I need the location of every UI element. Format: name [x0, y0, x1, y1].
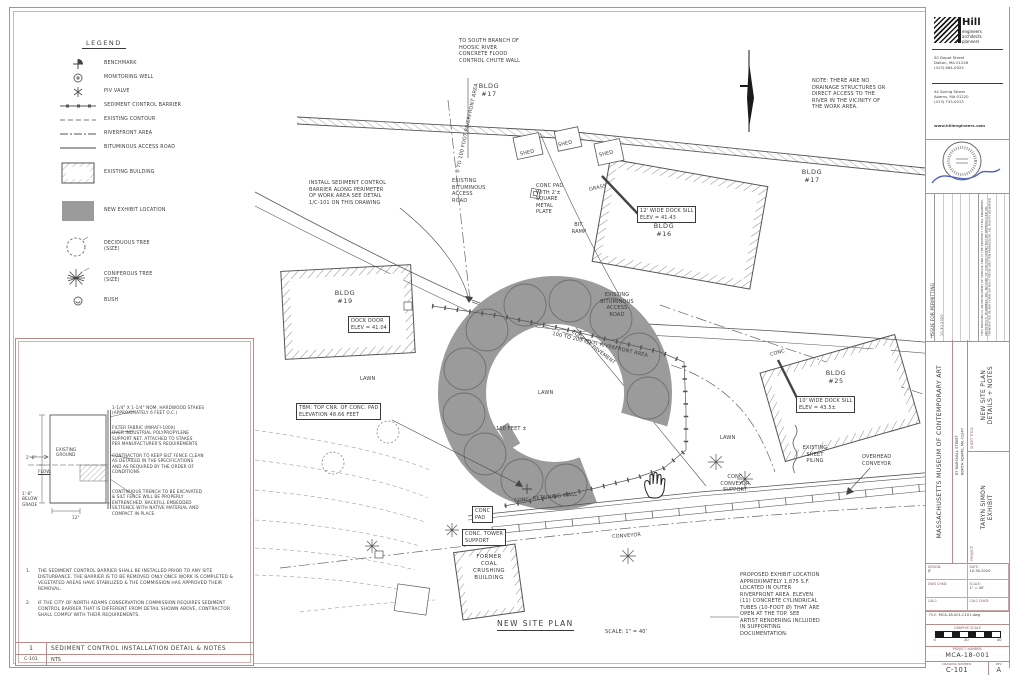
label-lawn-3: LAWN: [720, 435, 735, 442]
revision-description: ISSUE FOR PERMITTING: [930, 200, 935, 336]
benchmark-icon: [52, 58, 104, 70]
firm-address-2: 44 Spring Street Adams, MA 01220 (413) 7…: [934, 89, 969, 104]
detail-callout-trench: CONTINUOUS TRENCH TO BE EXCAVATED & SILT…: [112, 489, 244, 516]
label-bit-road-a: EXISTING BITUMINOUS ACCESS ROAD: [452, 178, 485, 204]
client-address: 87 MARSHALL STREET NORTH ADAMS, MA 01247: [955, 428, 966, 475]
deciduous-tree-icon: [52, 234, 104, 260]
legend-label: BENCHMARK: [104, 61, 137, 67]
legend-label: PIV VALVE: [104, 89, 130, 95]
label-dock-sill-25: 10' WIDE DOCK SILL ELEV = 43.5±: [796, 396, 855, 413]
legend-label: RIVERFRONT AREA: [104, 131, 152, 137]
label-conc-pad-plate: CONC PAD WITH 2'± SQUARE METAL PLATE: [536, 183, 563, 216]
firm-website: www.hillengineers.com: [934, 123, 985, 128]
firm-tagline: engineers architects planners: [962, 29, 982, 45]
field-value: 1" = 40': [970, 586, 985, 590]
existing-contour-icon: [52, 114, 104, 126]
label-bit-ramp: BIT. RAMP: [572, 222, 587, 235]
field-calc: CALC:: [926, 598, 968, 611]
dim-below-grade: 1'-6" BELOW GRADE: [22, 491, 38, 507]
deciduous-trees: [322, 421, 399, 474]
riverfront-area-icon: [52, 128, 104, 140]
existing-contours: [255, 430, 435, 612]
label-conc-conveyor-support: CONC CONVEYOR SUPPORT: [720, 474, 749, 494]
detail-callout-contractor: CONTRACTOR TO KEEP SILT FENCE CLEAN AS D…: [112, 453, 244, 475]
copyright-fine-print: THIS DRAWING IS AN INSTRUMENT OF SERVICE…: [981, 196, 1007, 336]
field-date: DATE:10-30-2020: [968, 563, 1010, 580]
label-lawn-2: LAWN: [538, 390, 553, 397]
label-dock-sill-16: 12' WIDE DOCK SILL ELEV = 41.43: [637, 206, 696, 223]
project-title: TARYN SIMON EXHIBIT: [980, 485, 994, 529]
existing-building-icon: [52, 160, 104, 186]
project-client-block: MASSACHUSETTS MUSEUM OF CONTEMPORARY ART…: [926, 340, 1009, 564]
dim-existing-ground: EXISTING GROUND: [56, 447, 76, 458]
legend-label: MONITORING WELL: [104, 75, 153, 81]
legend-label: DECIDUOUS TREE (SIZE): [104, 241, 150, 253]
divider: [932, 83, 1003, 84]
firm-name: Hill: [962, 17, 981, 28]
firm-logo-icon: [934, 17, 961, 43]
legend-label: EXISTING CONTOUR: [104, 117, 155, 123]
drawing-sheet: TO SOUTH BRANCH OF HOOSIC RIVER CONCRETE…: [0, 0, 1016, 675]
label-lawn-1: LAWN: [360, 376, 375, 383]
label-bit-road-b: EXISTING BITUMINOUS ACCESS ROAD: [600, 292, 633, 318]
sediment-barrier-icon: [52, 100, 104, 112]
label-conc-pad-small: CONC PAD: [472, 506, 493, 523]
detail-scale: NTS: [47, 655, 253, 665]
revision-block: ISSUE FOR PERMITTING 10-30-2020 1 THIS D…: [926, 193, 1009, 342]
building-19: [281, 265, 415, 360]
hand-cursor: [645, 473, 665, 499]
scale-tick: 20: [964, 638, 969, 642]
project-number: MCA-18-001: [926, 651, 1009, 659]
client-name-cell: MASSACHUSETTS MUSEUM OF CONTEMPORARY ART: [926, 340, 953, 563]
field-label: CALC CHKD:: [970, 599, 1007, 603]
label-bldg-19: BLDG #19: [335, 289, 356, 306]
legend-label: EXISTING BUILDING: [104, 170, 155, 176]
sheet-title: NEW SITE PLAN DETAILS + NOTES: [980, 366, 994, 424]
revision-date: 10-30-2020: [940, 200, 944, 336]
detail-callout-stakes: 1-1/4" X 1-1/4" NOM. HARDWOOD STAKES (AP…: [112, 405, 244, 416]
label-install-barrier-note: INSTALL SEDIMENT CONTROL BARRIER ALONG P…: [309, 180, 386, 206]
title-block: Hill engineers architects planners 50 De…: [925, 7, 1010, 668]
field-label: DWG CHKD:: [928, 582, 965, 586]
legend: LEGEND BENCHMARK MONITORING WELL PIV VAL…: [52, 30, 248, 309]
file-value: MCA-18-001-C101.dwg: [939, 613, 980, 617]
drawing-info-fields: DESIGN:JF DATE:10-30-2020 DWG CHKD: SCAL…: [926, 563, 1009, 612]
label-bldg-17-b: BLDG #17: [802, 168, 823, 185]
piv-valve-icon: [52, 86, 104, 98]
file-row: FILE: MCA-18-001-C101.dwg: [926, 611, 1009, 625]
label-overhead-conveyor: OVERHEAD CONVEYOR: [862, 454, 891, 467]
label-110-feet: 110 FEET ±: [496, 426, 527, 433]
detail-note-1: THE SEDIMENT CONTROL BARRIER SHALL BE IN…: [38, 569, 245, 593]
legend-label: BITUMINOUS ACCESS ROAD: [104, 145, 175, 151]
detail-note-2-number: 2.: [26, 601, 30, 606]
bituminous-road-icon: [52, 142, 104, 154]
detail-title: SEDIMENT CONTROL INSTALLATION DETAIL & N…: [47, 643, 253, 654]
building-16: [592, 159, 768, 289]
graphic-scale-bar: [935, 631, 1001, 638]
label-bldg-17-a: BLDG #17: [479, 82, 500, 99]
dim-flow: FLOW: [38, 469, 50, 474]
detail-callout-fabric: FILTER FABRIC (MIRAFI-100X) OVER INDUSTR…: [112, 425, 244, 447]
dim-width: 12": [72, 515, 80, 520]
revision-number: 1: [930, 334, 933, 339]
label-bldg-16: BLDG #16: [654, 222, 675, 239]
label-former-coal-building: FORMER COAL CRUSHING BUILDING: [473, 554, 505, 582]
pe-seal: [926, 139, 1007, 191]
graphic-scale-block: GRAPHIC SCALE 0 20 40: [926, 625, 1009, 647]
pe-seal-block: [926, 139, 1009, 193]
firm-logo-block: Hill engineers architects planners 50 De…: [926, 7, 1009, 140]
bush-icon: [52, 294, 104, 308]
legend-title: LEGEND: [82, 39, 126, 49]
detail-note-2: IF THE CITY OF NORTH ADAMS CONSERVATION …: [38, 601, 245, 619]
field-value: JF: [928, 569, 931, 573]
firm-address-1: 50 Depot Street Dalton, MA 01226 (413) 6…: [934, 55, 968, 70]
sediment-detail-box: 2'-6" EXISTING GROUND FLOW 1'-6" BELOW G…: [15, 338, 254, 666]
label-sheet-piling: EXISTING SHEET PILING: [803, 445, 828, 465]
client-address-cell: 87 MARSHALL STREET NORTH ADAMS, MA 01247: [953, 340, 968, 563]
field-calc-chkd: CALC CHKD:: [968, 598, 1010, 611]
legend-label: CONIFEROUS TREE (SIZE): [104, 272, 152, 284]
client-name: MASSACHUSETTS MUSEUM OF CONTEMPORARY ART: [936, 365, 943, 539]
project-label: PROJECT:: [970, 454, 974, 561]
label-dock-door-19: DOCK DOOR ELEV = 41.04: [348, 316, 390, 333]
detail-number: 1: [16, 643, 47, 654]
field-label: DESIGN:: [928, 565, 965, 569]
plan-title: NEW SITE PLAN: [497, 619, 574, 631]
label-proposed-exhibit-note: PROPOSED EXHIBIT LOCATION APPROXIMATELY …: [740, 572, 820, 637]
detail-sheet-ref: C-101: [16, 655, 47, 665]
legend-label: SEDIMENT CONTROL BARRIER: [104, 103, 181, 109]
detail-note-1-number: 1.: [26, 569, 30, 574]
coniferous-tree-icon: [52, 265, 104, 291]
field-value: 10-30-2020: [970, 569, 991, 573]
new-exhibit-icon: [52, 197, 104, 225]
field-dwg-chkd: DWG CHKD:: [926, 580, 968, 597]
sheet-title-cell: SHEET TITLE: NEW SITE PLAN DETAILS + NOT…: [968, 340, 1009, 452]
graphic-scale-label: GRAPHIC SCALE: [926, 626, 1009, 630]
scale-tick: 40: [997, 638, 1002, 642]
label-conc-tower-support: CONC. TOWER SUPPORT: [462, 529, 506, 546]
label-tbm-note: TBM: TOP CNR. OF CONC. PAD ELEVATION 48.…: [296, 403, 381, 420]
drawing-number-block: DRAWING NUMBER: C-101 REV: A: [926, 661, 1009, 675]
rev-value: A: [989, 666, 1009, 674]
label-bldg-25: BLDG #25: [826, 369, 847, 386]
divider: [932, 49, 1003, 50]
project-number-block: PROJECT NUMBER: MCA-18-001: [926, 646, 1009, 662]
field-design: DESIGN:JF: [926, 563, 968, 580]
field-label: CALC:: [928, 599, 965, 603]
label-hoosic-river-note: TO SOUTH BRANCH OF HOOSIC RIVER CONCRETE…: [459, 38, 520, 64]
drawing-number: C-101: [926, 666, 988, 674]
north-arrow: [740, 50, 754, 132]
detail-footer: 1 SEDIMENT CONTROL INSTALLATION DETAIL &…: [16, 642, 253, 665]
legend-label: BUSH: [104, 298, 118, 304]
plan-scale: SCALE: 1" = 40': [605, 629, 647, 636]
legend-label: NEW EXHIBIT LOCATION: [104, 208, 166, 214]
file-label: FILE:: [929, 613, 938, 617]
scale-tick: 0: [934, 638, 936, 642]
monitoring-well-icon: [52, 72, 104, 84]
project-title-cell: PROJECT: TARYN SIMON EXHIBIT: [968, 452, 1009, 563]
field-scale: SCALE:1" = 40': [968, 580, 1010, 597]
dim-height: 2'-6": [26, 455, 36, 460]
label-drainage-note: NOTE: THERE ARE NO DRAINAGE STRUCTURES O…: [812, 78, 885, 111]
sheet-title-label: SHEET TITLE:: [970, 342, 974, 449]
